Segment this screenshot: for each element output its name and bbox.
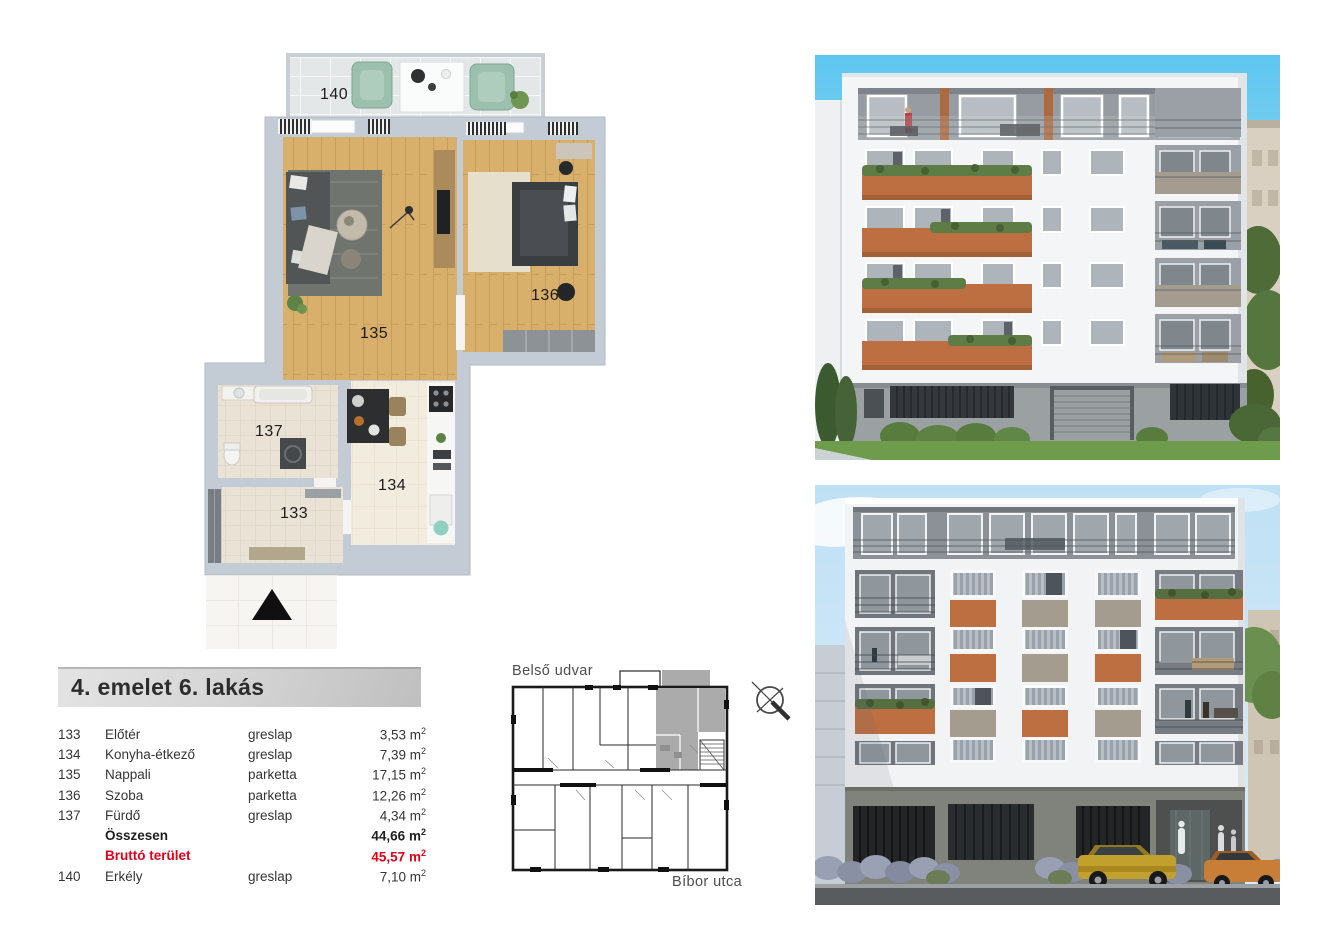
room-area: 45,57 m2	[348, 848, 426, 865]
table-row: 136 Szoba parketta 12,26 m2	[58, 785, 426, 805]
room-number: 133	[58, 727, 105, 742]
room-area: 7,10 m2	[348, 868, 426, 885]
north-arrow-icon	[752, 682, 789, 719]
room-number: 136	[58, 788, 105, 803]
room-area: 3,53 m2	[348, 726, 426, 743]
page: 140 135 136 137 134 133 4. emelet 6. lak…	[0, 0, 1340, 947]
room-name: Szoba	[105, 788, 248, 803]
room-label-134: 134	[378, 477, 406, 495]
table-row: 137 Fürdő greslap 4,34 m2	[58, 805, 426, 825]
unit-title: 4. emelet 6. lakás	[58, 674, 264, 701]
building-rendering-bottom	[815, 485, 1280, 905]
room-name: Konyha-étkező	[105, 747, 248, 762]
building-rendering-top	[815, 55, 1280, 460]
room-name: Fürdő	[105, 808, 248, 823]
apartment-floorplan	[200, 40, 620, 660]
room-name: Erkély	[105, 869, 248, 884]
right-balconies	[1155, 88, 1241, 363]
table-row: 135 Nappali parketta 17,15 m2	[58, 765, 426, 785]
room-name: Összesen	[105, 828, 248, 843]
table-row: 134 Konyha-étkező greslap 7,39 m2	[58, 744, 426, 764]
room-label-136: 136	[531, 287, 559, 305]
room-finish: greslap	[248, 747, 348, 762]
room-label-135: 135	[360, 325, 388, 343]
living-room	[283, 137, 457, 380]
room-number: 134	[58, 747, 105, 762]
room-finish: greslap	[248, 869, 348, 884]
table-row: 140 Erkély greslap 7,10 m2	[58, 866, 426, 886]
room-name: Nappali	[105, 767, 248, 782]
stairwell	[700, 740, 724, 770]
room-finish: greslap	[248, 808, 348, 823]
entry-hall	[208, 487, 343, 563]
room-finish: parketta	[248, 788, 348, 803]
room-number: 137	[58, 808, 105, 823]
table-row: 133 Előtér greslap 3,53 m2	[58, 724, 426, 744]
table-row-total: Összesen 44,66 m2	[58, 825, 426, 845]
room-area: 7,39 m2	[348, 746, 426, 763]
garage-door	[1050, 386, 1134, 440]
room-finish: parketta	[248, 767, 348, 782]
unit-title-bar: 4. emelet 6. lakás	[58, 667, 421, 707]
room-finish: greslap	[248, 727, 348, 742]
kitchen	[347, 381, 455, 545]
top-floor-terrace	[853, 507, 1235, 559]
room-label-137: 137	[255, 423, 283, 441]
room-area: 17,15 m2	[348, 766, 426, 783]
room-area: 44,66 m2	[348, 827, 426, 844]
room-area: 12,26 m2	[348, 787, 426, 804]
room-label-133: 133	[280, 505, 308, 523]
floor-key-plan	[505, 662, 795, 874]
room-name: Bruttó terület	[105, 848, 248, 863]
room-label-140: 140	[320, 86, 348, 104]
entrance-corridor	[206, 575, 337, 649]
keyplan-bottom-label: Bíbor utca	[672, 874, 742, 890]
room-number: 140	[58, 869, 105, 884]
room-name: Előtér	[105, 727, 248, 742]
room-table: 133 Előtér greslap 3,53 m2 134 Konyha-ét…	[58, 724, 426, 886]
room-number: 135	[58, 767, 105, 782]
table-row-gross: Bruttó terület 45,57 m2	[58, 846, 426, 866]
bedroom	[463, 140, 595, 352]
room-area: 4,34 m2	[348, 807, 426, 824]
